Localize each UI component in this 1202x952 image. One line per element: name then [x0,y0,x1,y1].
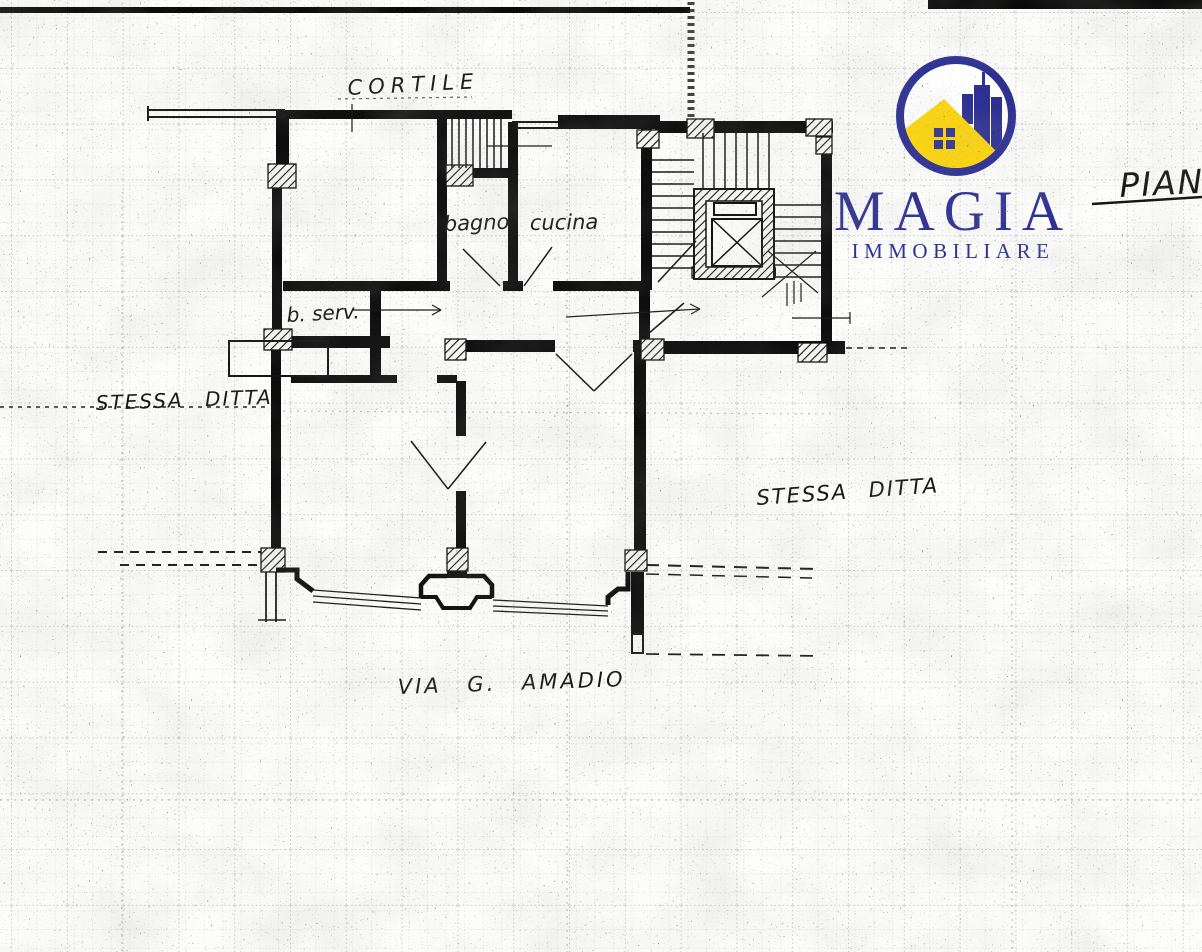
scan-noise [0,0,1202,952]
floorplan-svg: CORTILE bagno cucina b. serv. STESSA DIT… [0,0,1202,952]
scanned-floorplan-page: CORTILE bagno cucina b. serv. STESSA DIT… [0,0,1202,952]
